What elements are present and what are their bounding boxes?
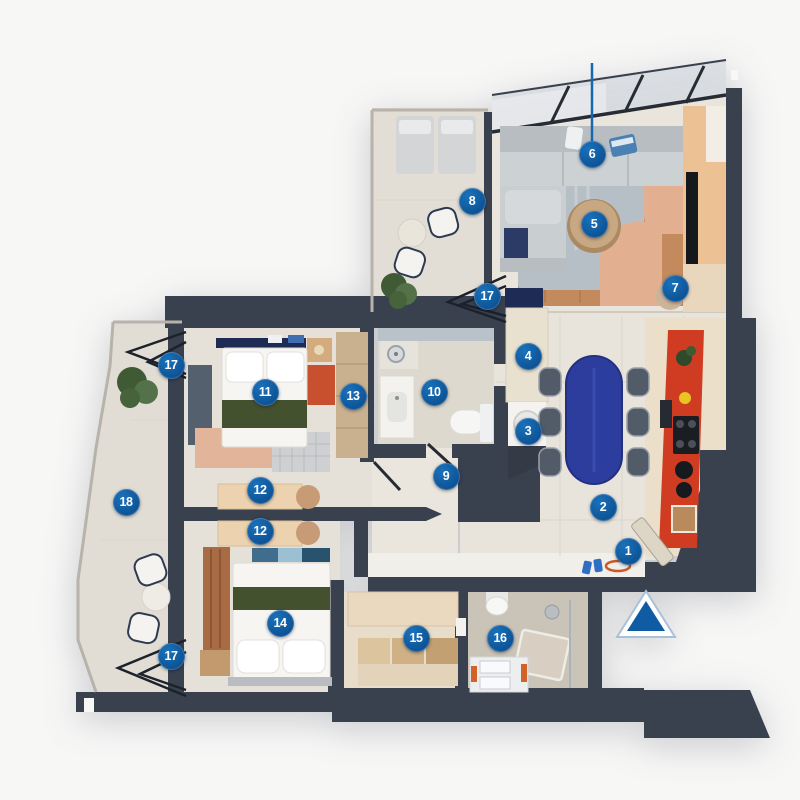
marker-17-18[interactable]: 17 [474, 283, 501, 310]
marker-10[interactable]: 10 [421, 379, 448, 406]
marker-11[interactable]: 11 [252, 379, 279, 406]
marker-3[interactable]: 3 [515, 418, 542, 445]
marker-4[interactable]: 4 [515, 343, 542, 370]
marker-9[interactable]: 9 [433, 463, 460, 490]
marker-7[interactable]: 7 [662, 275, 689, 302]
marker-17-17[interactable]: 17 [158, 352, 185, 379]
marker-14[interactable]: 14 [267, 610, 294, 637]
marker-16[interactable]: 16 [487, 625, 514, 652]
marker-5[interactable]: 5 [581, 211, 608, 238]
marker-18[interactable]: 18 [113, 489, 140, 516]
marker-12-11[interactable]: 12 [247, 477, 274, 504]
marker-layer: 123456789101112121314151617171718 [0, 0, 800, 800]
marker-1[interactable]: 1 [615, 538, 642, 565]
marker-6[interactable]: 6 [579, 141, 606, 168]
floor-plan-stage: 123456789101112121314151617171718 [0, 0, 800, 800]
marker-17-19[interactable]: 17 [158, 643, 185, 670]
marker-2[interactable]: 2 [590, 494, 617, 521]
marker-12-12[interactable]: 12 [247, 518, 274, 545]
marker-8[interactable]: 8 [459, 188, 486, 215]
marker-15[interactable]: 15 [403, 625, 430, 652]
marker-13[interactable]: 13 [340, 383, 367, 410]
